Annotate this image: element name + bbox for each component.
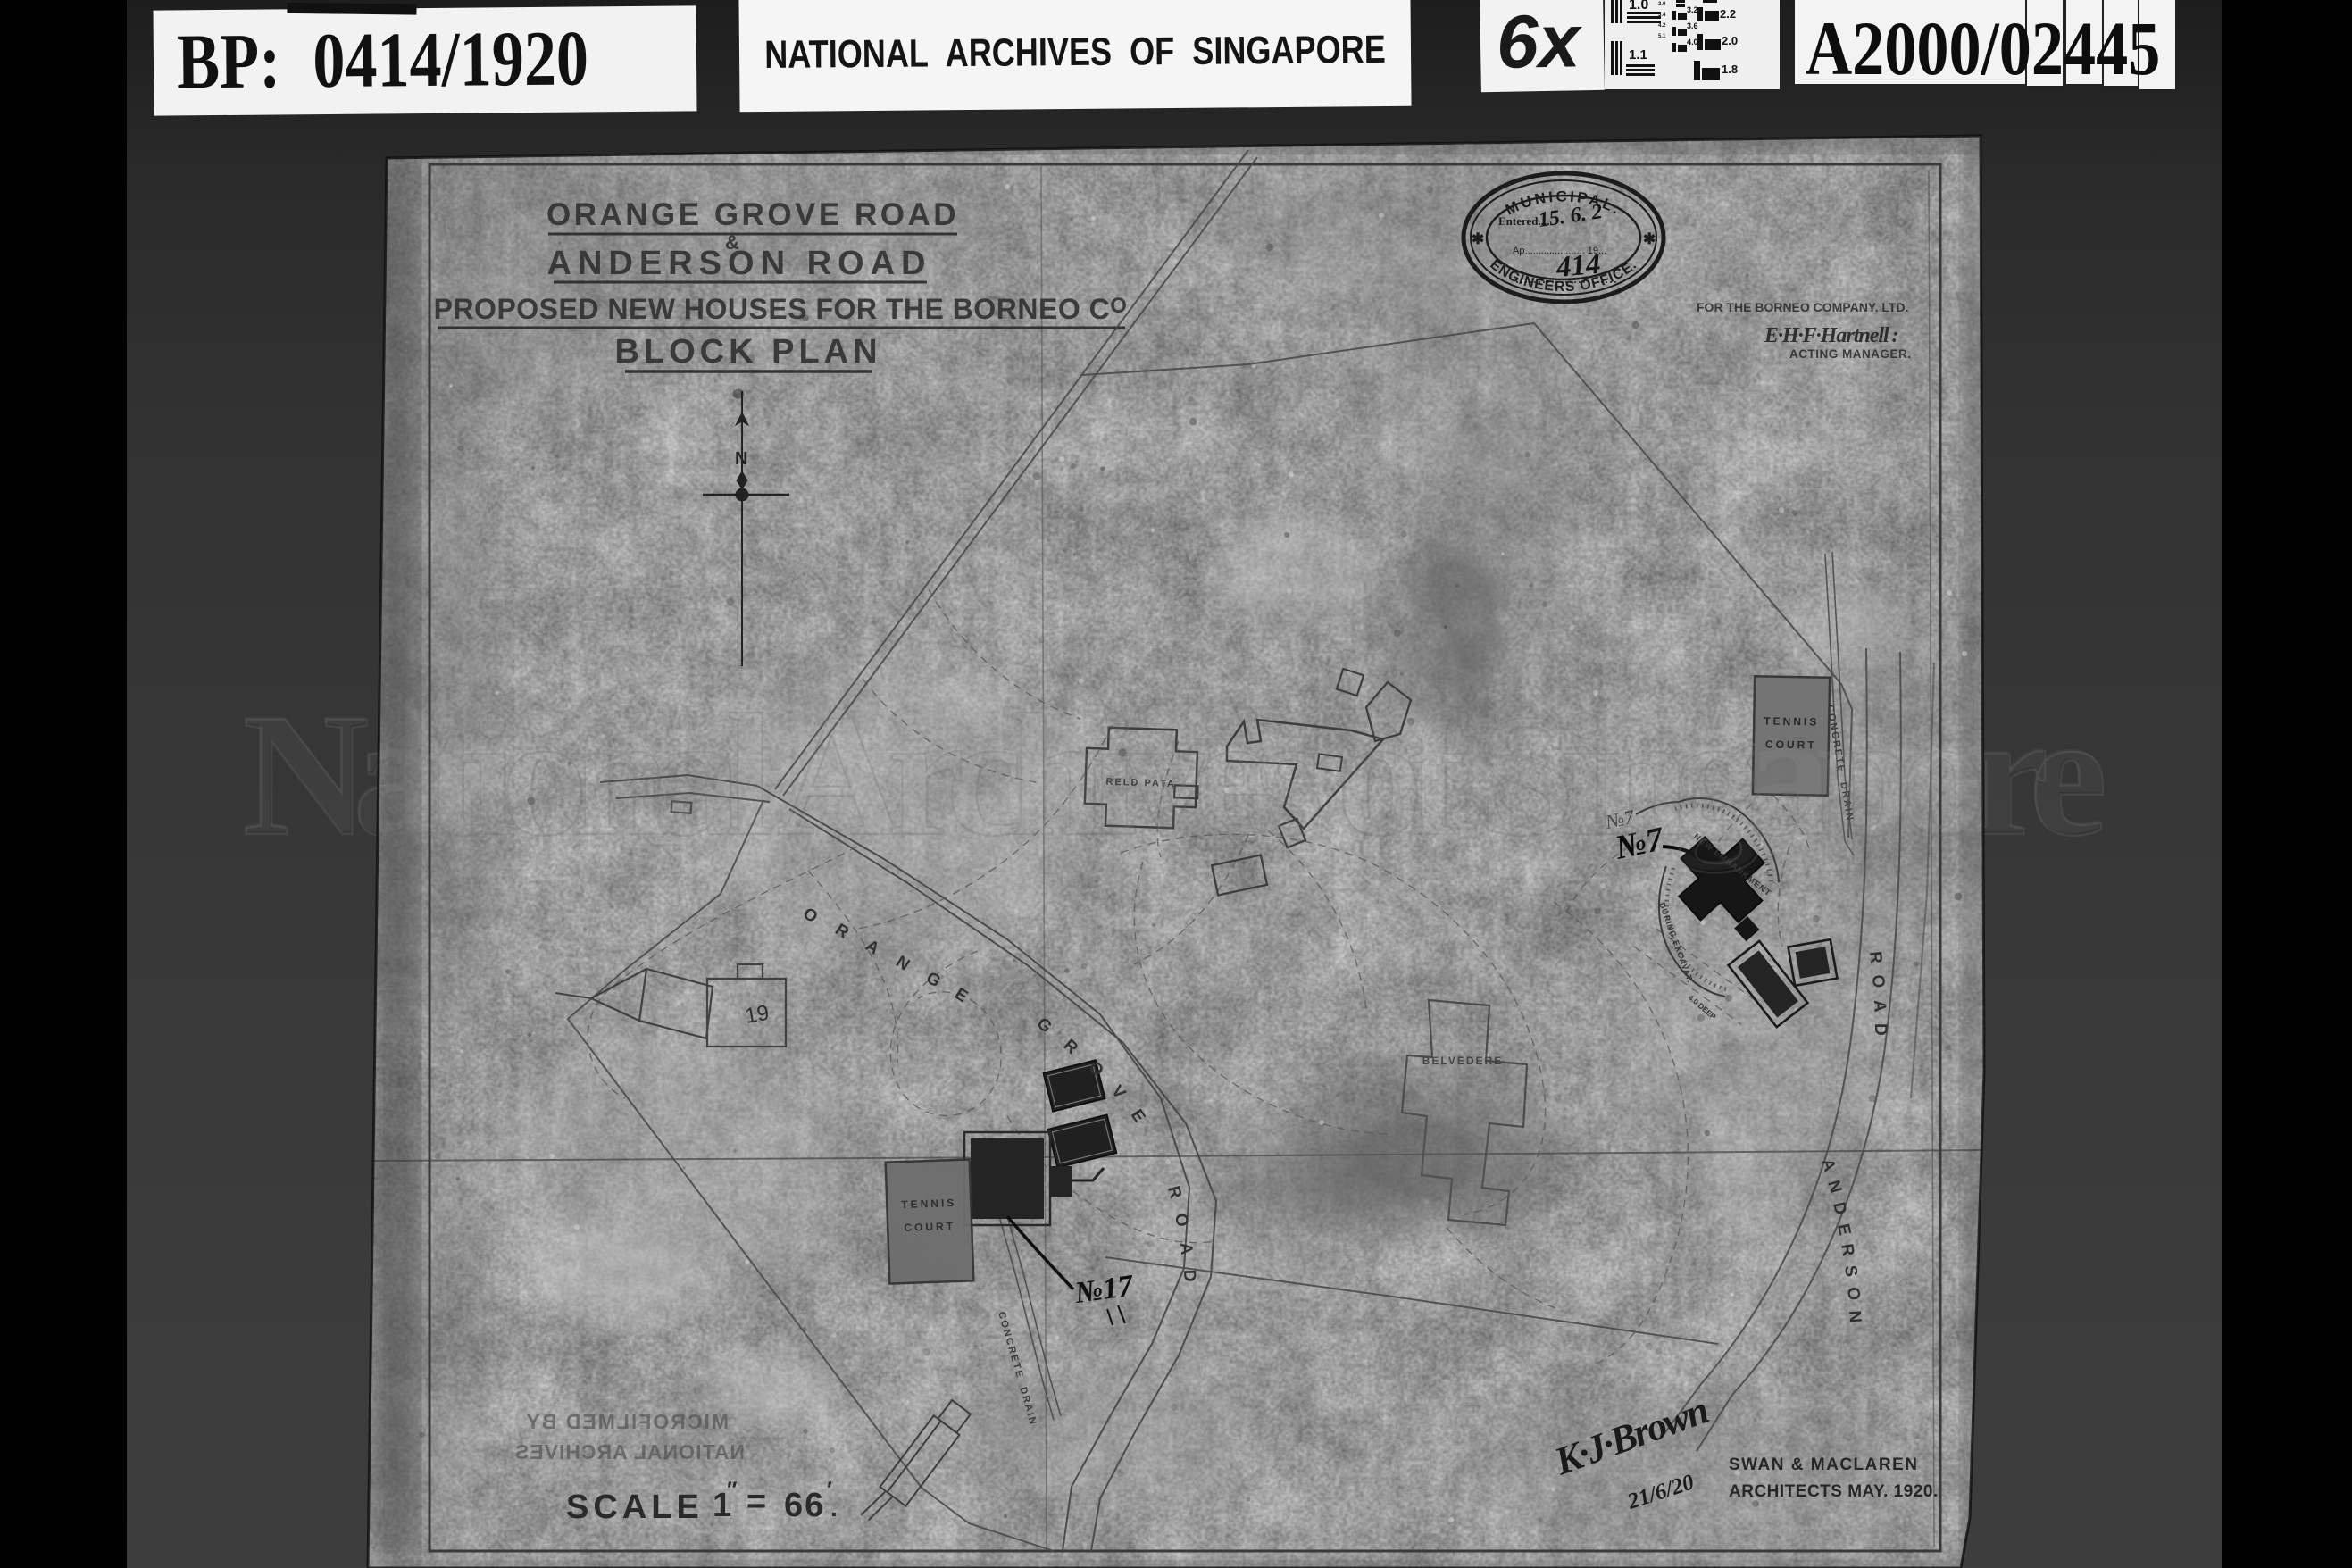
svg-text:N: N xyxy=(735,449,747,469)
svg-text:COURT: COURT xyxy=(904,1220,955,1234)
svg-text:TENNIS: TENNIS xyxy=(901,1197,956,1211)
svg-text:3.2: 3.2 xyxy=(1687,5,1698,14)
svg-text:414: 414 xyxy=(1555,248,1602,284)
svg-text:4.0: 4.0 xyxy=(1687,38,1698,46)
svg-text:E·H·F·Hartnell :: E·H·F·Hartnell : xyxy=(1764,324,1898,347)
svg-text:ACTING MANAGER.: ACTING MANAGER. xyxy=(1789,347,1912,361)
svg-text:1.1: 1.1 xyxy=(1629,47,1647,63)
svg-text:O: O xyxy=(1843,1286,1863,1301)
svg-text:A: A xyxy=(1176,1242,1196,1256)
svg-text:PROPOSED NEW HOUSES FOR THE BO: PROPOSED NEW HOUSES FOR THE BORNEO CO xyxy=(434,293,1128,325)
svg-text:1.8: 1.8 xyxy=(1722,63,1738,76)
svg-text:SCALE: SCALE xyxy=(566,1489,704,1526)
svg-text:3.0: 3.0 xyxy=(1658,2,1666,7)
svg-text:D: D xyxy=(1871,1023,1889,1036)
svg-text:D: D xyxy=(1180,1269,1198,1281)
svg-text:3.6: 3.6 xyxy=(1687,21,1698,30)
svg-text:66: 66 xyxy=(784,1487,825,1524)
svg-text:FOR THE BORNEO COMPANY. LTD.: FOR THE BORNEO COMPANY. LTD. xyxy=(1697,300,1908,314)
svg-text:✱: ✱ xyxy=(1472,230,1484,247)
svg-text:3.4: 3.4 xyxy=(1658,13,1666,18)
svg-text:NATIONAL ARCHIVES: NATIONAL ARCHIVES xyxy=(514,1440,745,1464)
svg-text:BLOCK PLAN: BLOCK PLAN xyxy=(614,333,881,371)
svg-text:R: R xyxy=(1865,950,1885,964)
svg-text:ORANGE GROVE ROAD: ORANGE GROVE ROAD xyxy=(546,197,959,232)
svg-text:MICROFILMED BY: MICROFILMED BY xyxy=(524,1410,729,1433)
svg-text:BELVEDERE: BELVEDERE xyxy=(1422,1055,1503,1067)
svg-text:1.0: 1.0 xyxy=(1629,0,1648,13)
svg-text:2.2: 2.2 xyxy=(1720,7,1736,21)
svg-text:ANDERSON ROAD: ANDERSON ROAD xyxy=(547,245,932,282)
svg-text:2.0: 2.0 xyxy=(1722,34,1738,47)
svg-text:✱: ✱ xyxy=(1643,230,1656,247)
svg-text:5.1: 5.1 xyxy=(1658,34,1666,39)
svg-text:ARCHITECTS MAY. 1920.: ARCHITECTS MAY. 1920. xyxy=(1729,1482,1939,1501)
svg-text:O: O xyxy=(1868,974,1888,988)
svg-text:4.2: 4.2 xyxy=(1658,23,1666,29)
svg-text:19: 19 xyxy=(743,1001,771,1029)
svg-text:A: A xyxy=(1870,999,1889,1013)
svg-text:=: = xyxy=(746,1483,766,1521)
svg-text:″: ″ xyxy=(727,1478,738,1502)
svg-text:SWAN & MACLAREN: SWAN & MACLAREN xyxy=(1729,1455,1919,1474)
svg-text:N: N xyxy=(1845,1310,1864,1323)
svg-text:.: . xyxy=(830,1494,838,1522)
svg-text:National Archives of Singapore: National Archives of Singapore xyxy=(241,676,2106,870)
